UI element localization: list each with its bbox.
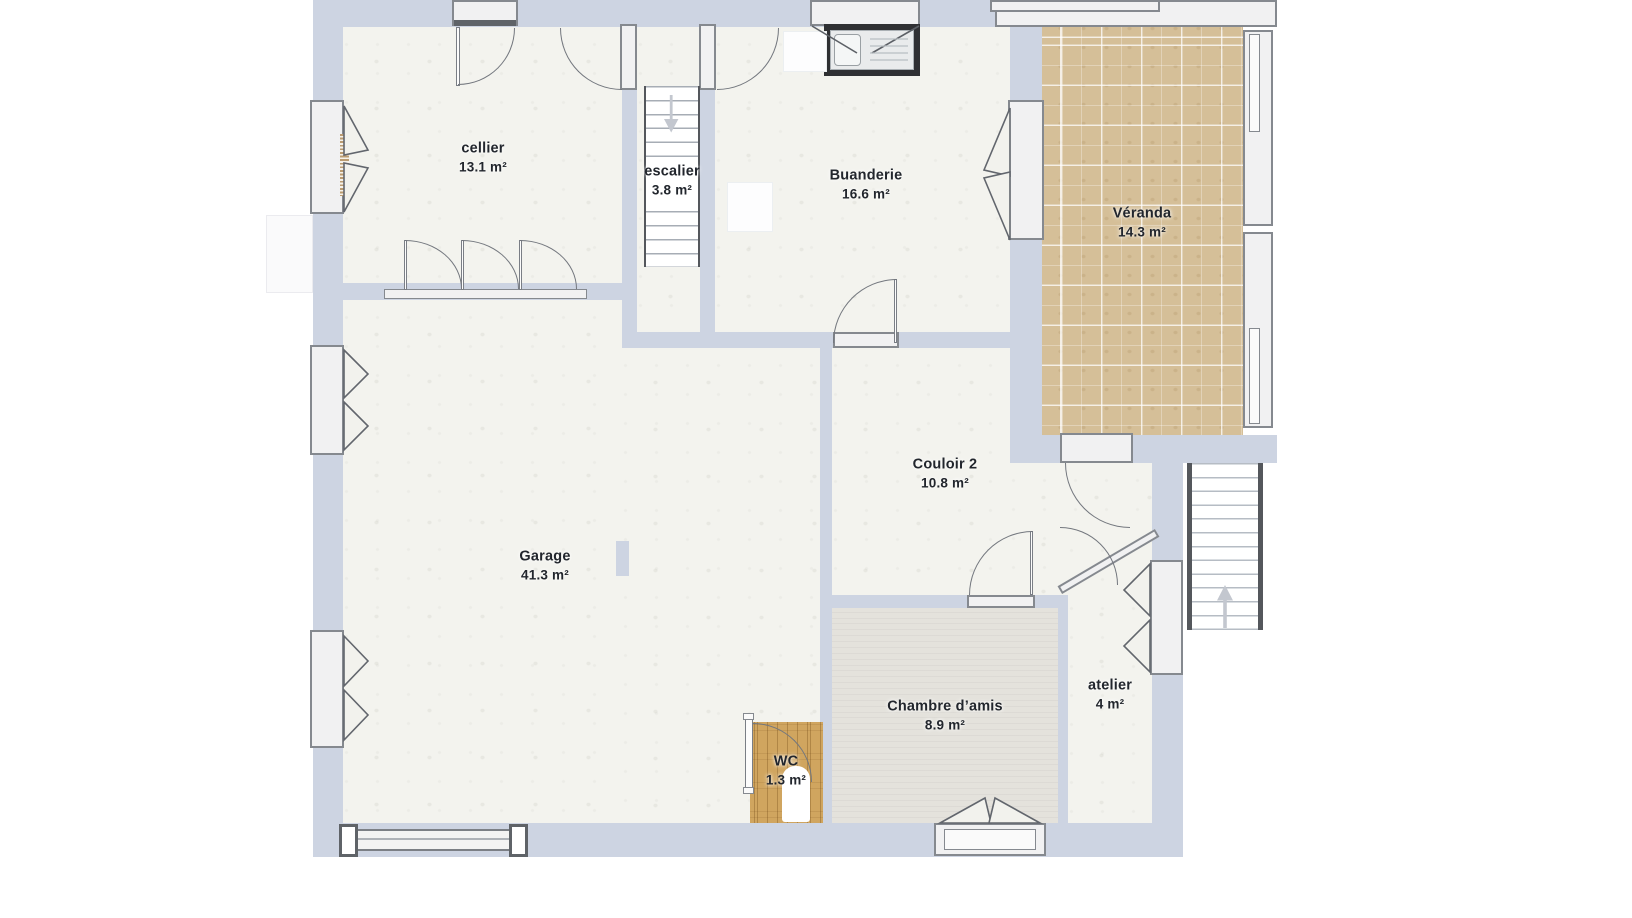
room-name: Chambre d’amis [887,698,1003,717]
wall-top [313,0,1042,27]
door-hinge-cap [743,787,754,794]
room-label-veranda: Véranda 14.3 m² [1113,205,1172,242]
room-area: 1.3 m² [766,771,806,790]
room-name: WC [766,753,806,772]
wall-chambre-atelier [1058,595,1068,823]
chambre-couloir-door [967,595,1035,608]
room-area: 41.3 m² [519,566,570,585]
garage-pillar [616,541,629,576]
room-name: Garage [519,548,570,567]
room-label-cellier: cellier 13.1 m² [459,140,507,177]
room-label-couloir-2: Couloir 2 10.8 m² [913,456,978,493]
sink-basin-icon [834,34,861,66]
door-hinge-cap [743,713,754,720]
room-label-atelier: atelier 4 m² [1088,677,1132,714]
wall-under-buanderie [622,332,1042,348]
room-name: cellier [459,140,507,159]
cellier-entry-threshold [454,20,516,26]
cellier-left-window [310,100,344,214]
room-area: 10.8 m² [913,474,978,493]
room-area: 8.9 m² [887,716,1003,735]
room-name: Couloir 2 [913,456,978,475]
stair-door-post-right [699,24,716,90]
floor-plan: cellier 13.1 m² escalier 3.8 m² Buanderi… [0,0,1632,918]
room-name: Véranda [1113,205,1172,224]
appliance [783,31,827,72]
room-label-escalier: escalier 3.8 m² [644,163,700,200]
buanderie-top-porch [810,0,920,26]
cellier-garage-door-threshold [384,289,587,299]
veranda-top-glazing-panel [990,0,1160,12]
atelier-right-window [1150,560,1183,675]
room-label-wc: WC 1.3 m² [766,753,806,790]
room-area: 14.3 m² [1113,223,1172,242]
veranda-couloir-door [1060,433,1133,463]
veranda-window-sash [1249,34,1260,132]
room-area: 13.1 m² [459,158,507,177]
exterior-ledge [266,215,313,293]
garage-left-window-2 [310,630,344,748]
veranda-window-sash [1249,328,1260,424]
buanderie-veranda-window [1008,100,1044,240]
room-label-buanderie: Buanderie 16.6 m² [830,167,903,204]
exterior-staircase [1187,463,1263,630]
stair-door-post-left [620,24,637,90]
room-area: 16.6 m² [830,185,903,204]
room-label-garage: Garage 41.3 m² [519,548,570,585]
garage-door-line [358,838,509,840]
room-area: 4 m² [1088,695,1132,714]
garage-left-window-1 [310,345,344,455]
roller-shutter-coil-icon [1001,147,1010,209]
room-name: atelier [1088,677,1132,696]
wall-terrace-band [1010,435,1277,463]
room-area: 3.8 m² [644,181,700,200]
room-floor-garage[interactable] [343,300,622,823]
garage-door-panel [358,829,509,851]
wc-door-leaf [745,718,753,788]
appliance [727,182,773,232]
garage-door-post [339,824,358,857]
room-label-chambre-amis: Chambre d’amis 8.9 m² [887,698,1003,735]
chambre-bottom-window-inner [944,829,1036,850]
room-name: Buanderie [830,167,903,186]
roller-shutter-coil-icon [340,134,349,196]
garage-door-post [509,824,528,857]
room-name: escalier [644,163,700,182]
